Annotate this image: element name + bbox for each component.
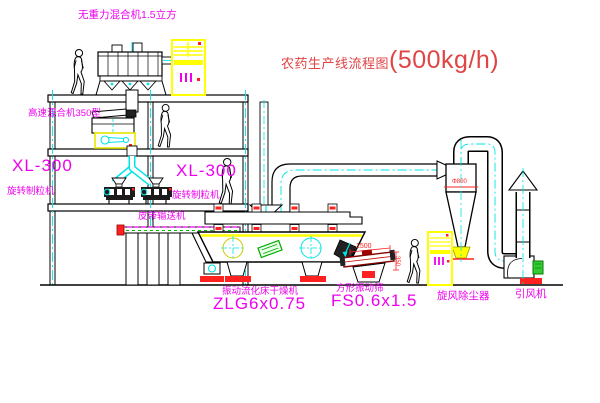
dimension-cyclone-diameter: Φ800	[452, 179, 467, 185]
label-belt-conveyor: 皮带输送机	[138, 212, 186, 222]
label-cyclone: 旋风除尘器	[437, 291, 490, 302]
dimension-screen-height: 350	[394, 256, 400, 266]
label-granulator-left-name: 旋转制粒机	[7, 187, 55, 197]
label-screen-model: FS0.6x1.5	[331, 292, 418, 309]
induced-draft-fan	[504, 256, 543, 284]
control-cabinet-right	[428, 232, 452, 285]
diagram-title: 农药生产线流程图 (500kg/h)	[281, 46, 499, 75]
person-figure-second	[158, 104, 170, 147]
fluid-bed-dryer	[198, 204, 365, 282]
label-high-speed-mixer: 高速混合机350型	[28, 109, 101, 119]
process-flow-diagram: 农药生产线流程图 (500kg/h) 无重力混合机1.5立方 高速混合机350型…	[0, 0, 600, 403]
granulator-left-machine	[104, 178, 135, 204]
label-granulator-left-model: XL-300	[12, 157, 73, 174]
diagram-title-capacity: (500kg/h)	[389, 46, 499, 75]
label-dryer-model: ZLG6x0.75	[213, 295, 306, 312]
person-figure-top	[71, 49, 84, 94]
label-granulator-right-model: XL-300	[176, 162, 237, 179]
diagram-title-text: 农药生产线流程图	[281, 53, 389, 72]
control-cabinet-top	[172, 40, 205, 95]
label-gravity-mixer: 无重力混合机1.5立方	[78, 10, 177, 21]
dimension-screen-length: 1500	[356, 243, 372, 250]
person-figure-ground	[407, 239, 420, 283]
label-granulator-right-name: 旋转制粒机	[172, 191, 220, 201]
label-fan: 引风机	[515, 289, 547, 300]
